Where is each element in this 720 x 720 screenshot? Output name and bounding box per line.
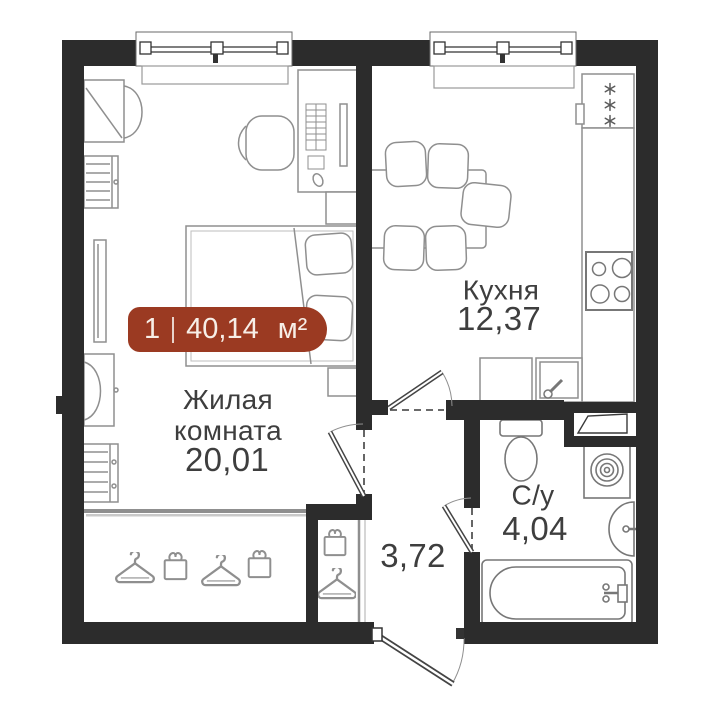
wardrobe-cabinet [84, 80, 142, 142]
base-cabinet [480, 358, 532, 402]
wall-living-hall-upper [356, 404, 372, 430]
window-living [136, 32, 292, 84]
nightstand [326, 192, 358, 224]
shelf [94, 240, 106, 342]
window-sill [142, 66, 288, 84]
toilet [500, 420, 542, 481]
washing-machine [584, 442, 630, 498]
nightstand [328, 368, 358, 396]
wall-bottom-left [62, 622, 374, 644]
desk-chair [239, 116, 295, 170]
window-sill [434, 66, 574, 88]
closet-top-wall [306, 504, 372, 520]
door-jamb [372, 400, 388, 415]
floorplan-canvas: 1 40,14м² Жилая комната 20,01 Кухня 12,3… [0, 0, 720, 720]
bed [186, 226, 358, 366]
wall-kitchen-bottom [446, 400, 564, 420]
hanger-icon [202, 554, 240, 585]
wall-bath-lower [464, 552, 480, 622]
door-hinge [372, 628, 382, 641]
window-kitchen [430, 32, 576, 88]
stove [586, 252, 632, 310]
bathroom-sink [609, 502, 638, 556]
box-icon [165, 553, 187, 579]
closet-sliding-door [356, 520, 368, 622]
wall-bottom-right [464, 622, 658, 644]
chair [427, 143, 469, 188]
dresser [80, 444, 118, 502]
kitchen-furniture [366, 74, 634, 402]
hanger-icon [116, 551, 154, 582]
fridge [576, 74, 634, 128]
wall-nub [56, 396, 62, 414]
box-icon [325, 530, 346, 555]
pillow [305, 295, 353, 341]
niche-top [564, 402, 636, 413]
desk [298, 70, 358, 192]
chair [385, 141, 427, 187]
hallway-closet [318, 530, 356, 598]
dining-set [366, 141, 512, 271]
niche-shelf [578, 414, 627, 433]
dresser [84, 156, 118, 208]
wall-top-mid [292, 40, 430, 66]
niche-bottom [564, 436, 636, 447]
hanger-icon [318, 567, 356, 598]
chair [383, 225, 425, 270]
wall-living-kitchen [356, 66, 372, 404]
armchair-crib [84, 354, 118, 426]
chair [425, 225, 467, 270]
box-icon [249, 551, 271, 577]
wall-left [62, 40, 84, 644]
living-room-door [330, 424, 364, 496]
pillow [305, 232, 354, 275]
wall-bath-upper [464, 420, 480, 508]
floor-plan [0, 0, 720, 720]
kitchen-sink [536, 358, 582, 402]
wardrobe-strip [84, 509, 306, 585]
bathtub [482, 560, 632, 626]
entrance-door [372, 628, 464, 684]
door-jamb [456, 628, 464, 639]
wall-right [636, 40, 658, 644]
chair [460, 182, 512, 229]
closet-left-wall [306, 520, 318, 622]
kitchen-door [389, 372, 452, 410]
